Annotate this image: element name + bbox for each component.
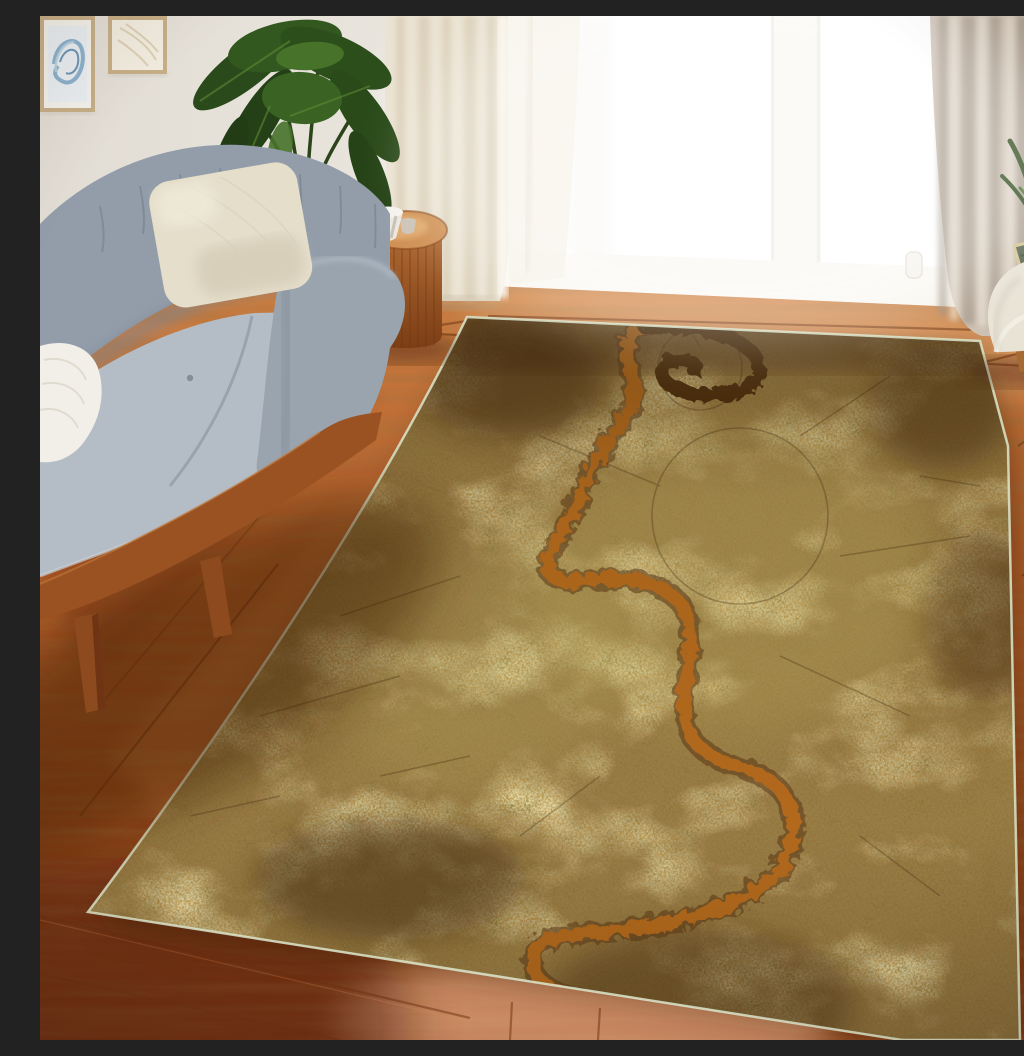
living-room-photo: Bright living room photograph: a gray ch… [40,16,1024,1040]
scene-canvas [40,16,1024,1040]
vignette [40,16,1024,1040]
